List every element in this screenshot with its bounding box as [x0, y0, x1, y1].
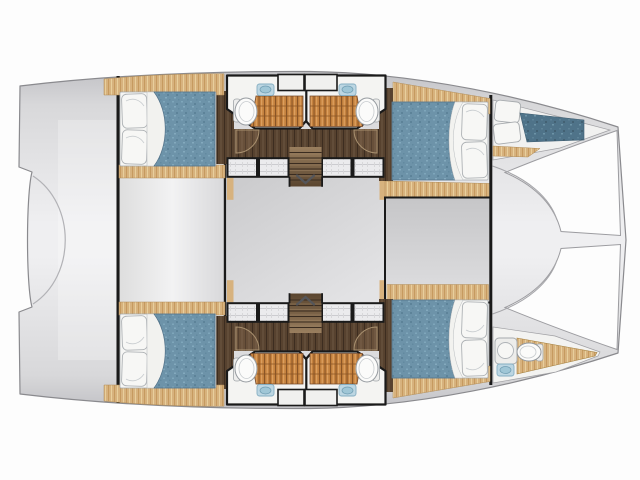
- saloon-corner-locker: [227, 280, 234, 302]
- forward-bulkhead-wall: [489, 95, 492, 385]
- aft-cockpit-floor: [120, 178, 225, 303]
- toilet: [517, 343, 543, 361]
- floor-plan-drawing: [0, 0, 640, 480]
- catamaran-floor-plan: [0, 0, 640, 480]
- shower-tray: [495, 338, 517, 364]
- port-hull-interior: [104, 74, 490, 187]
- saloon-corner-locker: [227, 178, 234, 200]
- sink: [497, 364, 514, 376]
- forward-cockpit-wood-bench: [387, 285, 489, 301]
- forward-cockpit-wood-step: [385, 181, 490, 198]
- aft-bulkhead-wall: [117, 76, 120, 403]
- starboard-hull-interior: [104, 293, 490, 406]
- pillow: [494, 100, 521, 123]
- forward-cockpit: [385, 181, 491, 303]
- stern-deck-highlight: [58, 120, 116, 360]
- pillow: [493, 121, 521, 144]
